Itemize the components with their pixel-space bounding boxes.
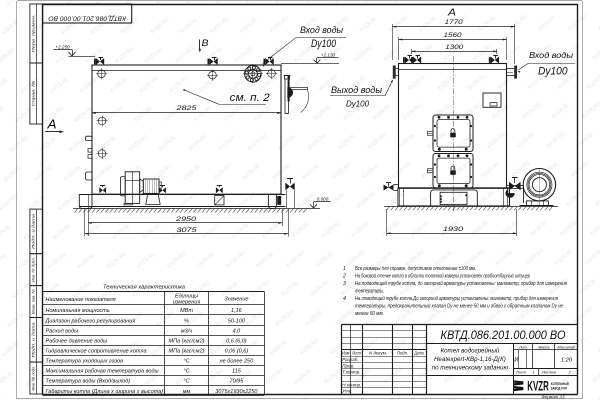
svg-text:по техническому заданию: по техническому заданию <box>432 365 509 372</box>
svg-text:4: 4 <box>343 296 346 302</box>
svg-text:Н.контр.: Н.контр. <box>342 382 361 387</box>
svg-text:Пров.: Пров. <box>342 363 354 368</box>
svg-text:температуры.: температуры. <box>355 288 384 294</box>
svg-text:Выход воды: Выход воды <box>331 85 382 95</box>
svg-text:На подводящей трубе котла, д: На подводящей трубе котла, до запорной а… <box>355 280 567 287</box>
svg-text:Диапазон рабочего регулировани: Диапазон рабочего регулирования <box>45 318 136 324</box>
svg-text:+2.130: +2.130 <box>321 53 336 58</box>
svg-text:И: И <box>514 357 519 363</box>
svg-text:В: В <box>202 38 210 49</box>
svg-text:Dу100: Dу100 <box>311 38 337 50</box>
svg-text:Лист: Лист <box>515 370 526 374</box>
svg-text:Инв. № дубл.: Инв. № дубл. <box>30 257 35 282</box>
svg-text:1,16: 1,16 <box>231 308 243 314</box>
svg-text:Формат А3: Формат А3 <box>542 395 566 400</box>
svg-text:4,0: 4,0 <box>233 328 242 334</box>
svg-text:Разраб.: Разраб. <box>342 357 358 362</box>
svg-text:Техническая характеристика: Техническая характеристика <box>103 284 186 290</box>
svg-text:70/95: 70/95 <box>230 379 245 385</box>
svg-text:%: % <box>184 318 189 324</box>
svg-text:Температура воды (Вход/выход): Температура воды (Вход/выход) <box>46 379 131 385</box>
svg-text:KVZR: KVZR <box>527 379 549 394</box>
svg-text:Максимальная рабочая температу: Максимальная рабочая температура воды <box>46 369 159 375</box>
svg-text:1770: 1770 <box>445 20 464 26</box>
svg-text:Лист: Лист <box>351 351 361 356</box>
svg-text:Вход воды: Вход воды <box>529 51 573 60</box>
svg-text:КВТД.086.201.00.000 ВО: КВТД.086.201.00.000 ВО <box>48 15 126 22</box>
svg-text:не более 250: не более 250 <box>220 359 255 365</box>
svg-text:Инв. № подл.: Инв. № подл. <box>30 366 35 391</box>
svg-text:Подп.: Подп. <box>397 351 408 356</box>
svg-text:1: 1 <box>532 370 534 374</box>
svg-text:измерения: измерения <box>173 300 201 306</box>
svg-text:°С: °С <box>183 379 189 385</box>
svg-text:°С: °С <box>183 359 189 365</box>
svg-text:1:20: 1:20 <box>561 357 573 363</box>
svg-text:2950: 2950 <box>175 216 197 223</box>
svg-text:2825: 2825 <box>175 105 197 112</box>
svg-text:А: А <box>447 7 456 19</box>
svg-text:ЗАВОД РЭП: ЗАВОД РЭП <box>551 387 567 391</box>
svg-text:менее 50 мм.: менее 50 мм. <box>355 311 384 317</box>
svg-text:Наименование показателя: Наименование показателя <box>46 297 116 303</box>
svg-text:На отводящей трубе котла,До за: На отводящей трубе котла,До запорной арм… <box>355 295 558 302</box>
svg-text:1: 1 <box>343 266 346 272</box>
svg-text:температуры, предохранительный: температуры, предохранительный клапан Dу… <box>355 302 563 309</box>
svg-text:Номинальная мощность: Номинальная мощность <box>46 308 110 314</box>
svg-text:мм: мм <box>183 389 191 395</box>
svg-text:115: 115 <box>232 369 242 375</box>
svg-text:3075х1930х2250: 3075х1930х2250 <box>215 389 258 395</box>
svg-text:МПа (кгс/см2): МПа (кгс/см2) <box>169 348 205 354</box>
svg-text:1560: 1560 <box>444 33 463 39</box>
svg-text:Изм: Изм <box>342 351 350 356</box>
svg-text:0.000: 0.000 <box>317 196 329 201</box>
svg-text:°С: °С <box>183 369 189 375</box>
svg-text:N докум.: N докум. <box>369 351 387 356</box>
svg-text:0,6 (6,0): 0,6 (6,0) <box>226 338 247 344</box>
svg-text:3075: 3075 <box>177 227 198 234</box>
svg-text:Подп. и дата: Подп. и дата <box>30 213 35 249</box>
svg-text:А: А <box>46 117 56 132</box>
svg-text:МВт: МВт <box>180 308 193 314</box>
svg-text:Вход воды: Вход воды <box>300 25 343 35</box>
svg-text:Значение: Значение <box>224 297 248 303</box>
svg-text:На боковой стенке котла в обла: На боковой стенке котла в области топочн… <box>355 272 530 279</box>
svg-text:50-100: 50-100 <box>228 318 246 324</box>
svg-text:Масса: Масса <box>538 345 549 349</box>
svg-text:Утв.: Утв. <box>342 389 352 394</box>
svg-text:2: 2 <box>342 273 346 279</box>
svg-text:Рабочее давление воды: Рабочее давление воды <box>46 338 108 344</box>
svg-text:Масштаб: Масштаб <box>557 345 576 349</box>
svg-text:Дата: Дата <box>413 351 424 356</box>
svg-text:Температура уходящих газов: Температура уходящих газов <box>46 359 124 365</box>
svg-text:Подп. и дата: Подп. и дата <box>30 321 35 357</box>
svg-text:КВТД.086.201.00.000 ВО: КВТД.086.201.00.000 ВО <box>441 330 566 342</box>
svg-text:Расход воды: Расход воды <box>46 328 79 334</box>
svg-text:Гидравлическое сопротивление к: Гидравлическое сопротивление котла <box>46 348 147 354</box>
svg-text:м3/ч: м3/ч <box>181 328 192 334</box>
svg-text:1930: 1930 <box>443 226 464 233</box>
svg-text:МПа (кгс/см2): МПа (кгс/см2) <box>169 338 205 344</box>
svg-text:КОТЕЛЬНЫЙ: КОТЕЛЬНЫЙ <box>551 382 569 386</box>
svg-text:Лит.: Лит. <box>518 345 528 349</box>
svg-text:1300: 1300 <box>445 45 464 51</box>
svg-text:Котел водогрейный: Котел водогрейный <box>440 348 499 355</box>
svg-text:Перв. примен.: Перв. примен. <box>30 15 35 53</box>
svg-text:Heatexpert-КВр-1,16-Д(К): Heatexpert-КВр-1,16-Д(К) <box>434 356 506 363</box>
svg-text:Все размеры для справок, допус: Все размеры для справок, допустимое откл… <box>355 266 476 272</box>
svg-text:Т.контр.: Т.контр. <box>342 370 360 375</box>
svg-text:см. п. 2: см. п. 2 <box>230 92 270 104</box>
svg-text:3: 3 <box>343 281 346 287</box>
svg-text:+2.250: +2.250 <box>55 44 70 49</box>
svg-text:Габариты котла (Длина х ширина: Габариты котла (Длина х ширина х высота) <box>46 389 164 395</box>
svg-text:0,06 (0,6): 0,06 (0,6) <box>225 348 249 354</box>
svg-text:Dу100: Dу100 <box>346 100 370 109</box>
svg-text:Dу100: Dу100 <box>538 66 568 78</box>
svg-text:Листов: Листов <box>541 370 556 374</box>
svg-text:Взам. инв. №: Взам. инв. № <box>30 288 35 314</box>
svg-text:Справ. №: Справ. № <box>30 80 35 107</box>
